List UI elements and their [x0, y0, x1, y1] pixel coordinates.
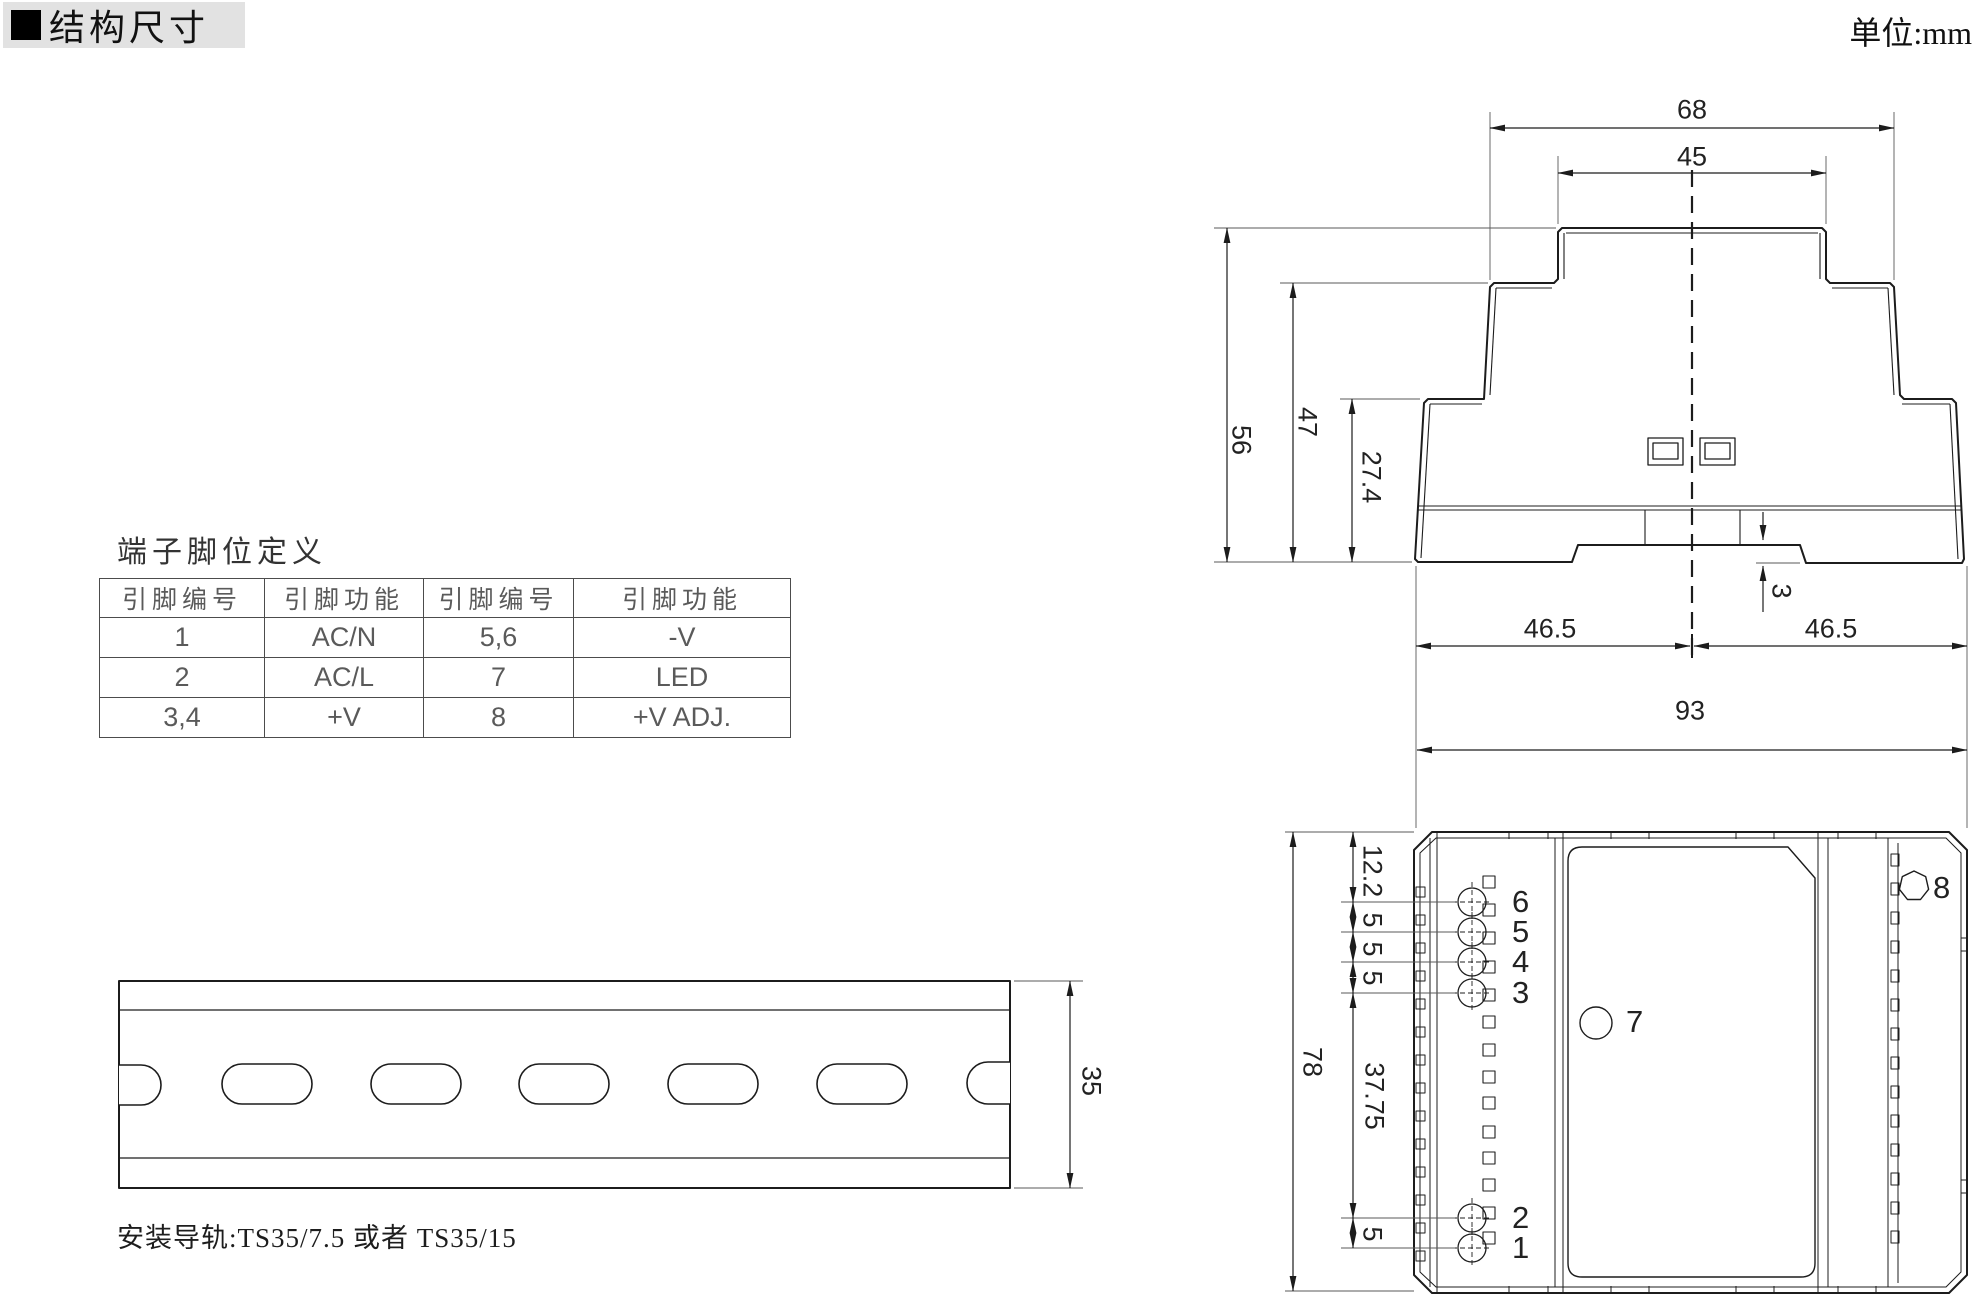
dim-46-5-left-label: 46.5: [1524, 614, 1577, 645]
table-row: 1 AC/N 5,6 -V: [100, 618, 791, 658]
side-view: [1415, 170, 1964, 658]
dim-78-label: 78: [1297, 1047, 1328, 1077]
rail-right-notch: [967, 1062, 1010, 1104]
pin-3-label: 3: [1512, 975, 1529, 1011]
front-view: [1414, 832, 1967, 1293]
pin-table: 引脚编号 引脚功能 引脚编号 引脚功能 1 AC/N 5,6 -V 2 AC/L…: [99, 578, 791, 738]
dim-5a-label: 5: [1357, 912, 1388, 927]
pin-function: AC/N: [265, 618, 424, 658]
col-header: 引脚编号: [100, 579, 265, 618]
pin-table-header-row: 引脚编号 引脚功能 引脚编号 引脚功能: [100, 579, 791, 618]
terminal-teeth: [1483, 876, 1495, 1244]
rail-dims: [1014, 981, 1083, 1188]
pin-function: +V ADJ.: [574, 698, 791, 738]
rail-caption: 安装导轨:TS35/7.5 或者 TS35/15: [117, 1216, 517, 1255]
pin-function: AC/L: [265, 658, 424, 698]
col-header: 引脚功能: [265, 579, 424, 618]
dim-46-5-right-label: 46.5: [1805, 614, 1858, 645]
dim-93-label: 93: [1675, 696, 1705, 727]
adj-pot-hole: [1899, 871, 1928, 900]
pin-number: 2: [100, 658, 265, 698]
dim-35-label: 35: [1076, 1066, 1107, 1096]
section-square-icon: [11, 10, 41, 40]
dim-5d-label: 5: [1357, 1226, 1388, 1241]
dim-45-label: 45: [1677, 142, 1707, 173]
led-7-label: 7: [1626, 1004, 1643, 1040]
dim-3-label: 3: [1766, 583, 1797, 598]
section-title-block: 结构尺寸: [3, 2, 245, 48]
dim-27-4-label: 27.4: [1356, 451, 1387, 504]
dim-47-label: 47: [1292, 407, 1323, 437]
din-rail: [119, 981, 1010, 1188]
section-title: 结构尺寸: [49, 0, 209, 51]
table-row: 2 AC/L 7 LED: [100, 658, 791, 698]
unit-label: 单位:mm: [1849, 8, 1972, 54]
pin-1-label: 1: [1512, 1230, 1529, 1266]
label-plate: [1568, 847, 1815, 1277]
dim-5c-label: 5: [1357, 970, 1388, 985]
col-header: 引脚编号: [424, 579, 574, 618]
dim-5b-label: 5: [1357, 941, 1388, 956]
pin-function: LED: [574, 658, 791, 698]
rail-left-notch: [119, 1065, 161, 1105]
pin-number: 7: [424, 658, 574, 698]
terminal-screws: [1452, 882, 1492, 1268]
dim-56-label: 56: [1226, 425, 1257, 455]
pin-table-title: 端子脚位定义: [117, 527, 327, 571]
pin-function: -V: [574, 618, 791, 658]
dim-37-75-label: 37.75: [1359, 1062, 1390, 1130]
side-view-dims: [1214, 112, 1967, 828]
col-header: 引脚功能: [574, 579, 791, 618]
pin-number: 3,4: [100, 698, 265, 738]
pin-number: 1: [100, 618, 265, 658]
adj-8-label: 8: [1933, 870, 1950, 906]
dim-68-label: 68: [1677, 95, 1707, 126]
page: 结构尺寸 单位:mm 端子脚位定义 引脚编号 引脚功能 引脚编号 引脚功能 1 …: [0, 0, 1974, 1298]
dim-12-2-label: 12.2: [1357, 845, 1388, 898]
pin-function: +V: [265, 698, 424, 738]
pin-number: 8: [424, 698, 574, 738]
table-row: 3,4 +V 8 +V ADJ.: [100, 698, 791, 738]
rail-slots: [222, 1064, 907, 1104]
pin-number: 5,6: [424, 618, 574, 658]
led-hole: [1580, 1007, 1612, 1039]
